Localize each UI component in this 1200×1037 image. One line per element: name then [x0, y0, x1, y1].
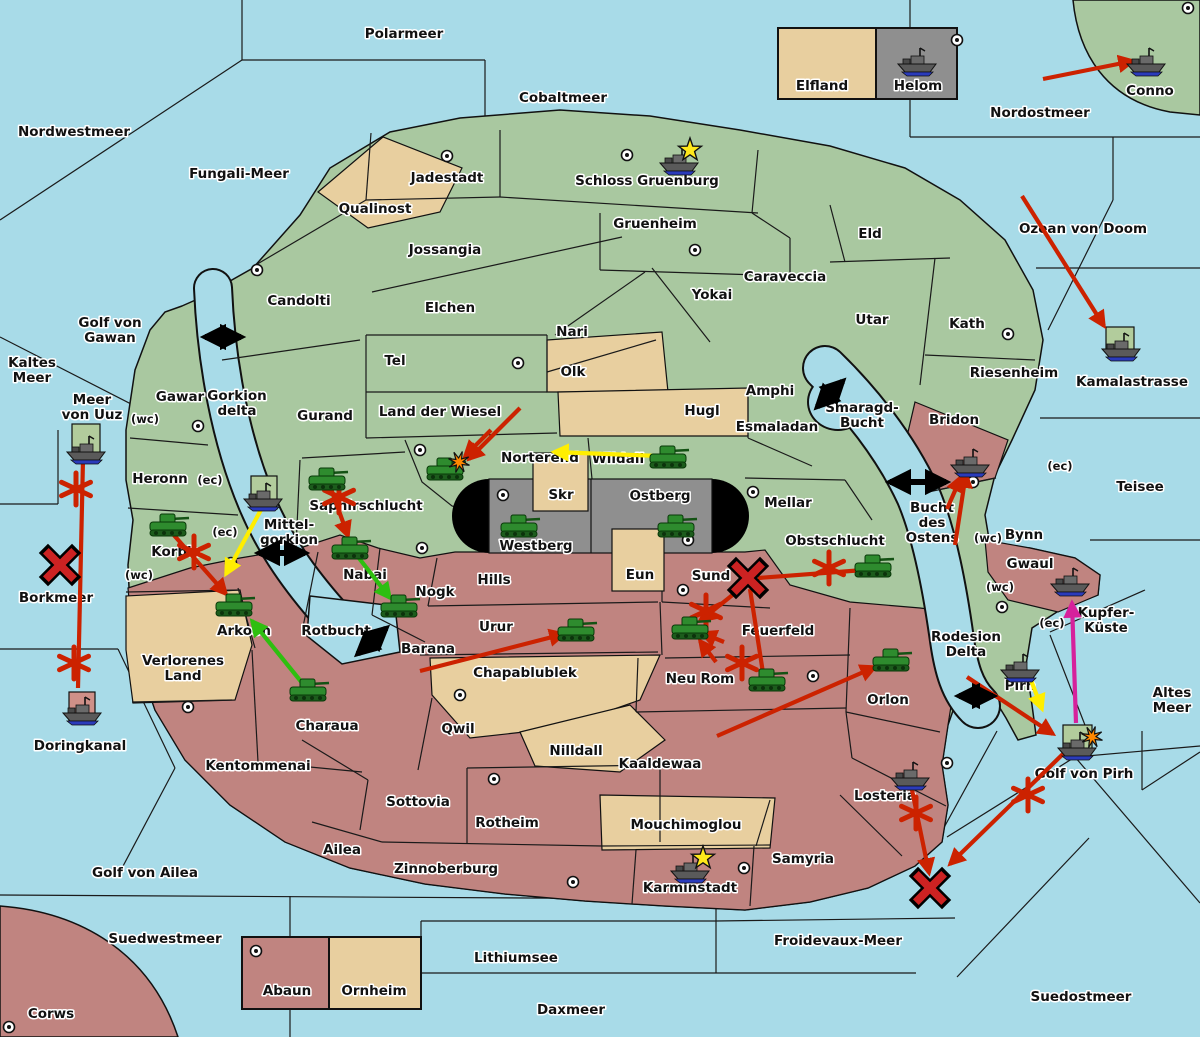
region-label-nabai: Nabai	[343, 567, 387, 583]
region-label-yokai: Yokai	[691, 287, 733, 303]
supply-center-dot	[513, 358, 524, 369]
supply-center-dot	[442, 151, 453, 162]
region-label-bridon: Bridon	[929, 412, 979, 428]
region-label-kentommenai: Kentommenai	[205, 758, 310, 774]
coast-label: (ec)	[197, 473, 222, 487]
sea-label-nordostmeer: Nordostmeer	[990, 105, 1090, 121]
region-label-riesenheim: Riesenheim	[970, 365, 1058, 381]
sea-label-rotbucht: Rotbucht	[301, 623, 371, 639]
region-label-westberg: Westberg	[499, 538, 572, 554]
region-label-kath: Kath	[949, 316, 985, 332]
supply-center-dot	[1003, 329, 1014, 340]
coast-label: (ec)	[212, 525, 237, 539]
game-map-window: PolarmeerCobaltmeerNordwestmeerFungali-M…	[0, 0, 1200, 1037]
sea-label-kamalastrasse: Kamalastrasse	[1076, 374, 1188, 390]
supply-center-dot	[193, 421, 204, 432]
region-label-corws: Corws	[28, 1006, 74, 1022]
coast-label: (ec)	[1047, 459, 1072, 473]
supply-center-dot	[622, 150, 633, 161]
sea-label-kupfer-kueste: Kupfer-Küste	[1078, 605, 1135, 636]
sea-label-doringkanal: Doringkanal	[34, 738, 126, 754]
coast-label: (wc)	[974, 531, 1002, 545]
supply-center-dot	[739, 863, 750, 874]
coast-label: (wc)	[986, 580, 1014, 594]
supply-center-dot	[952, 35, 963, 46]
region-label-sottovia: Sottovia	[386, 794, 450, 810]
region-label-rotheim: Rotheim	[475, 815, 539, 831]
supply-center-dot	[997, 602, 1008, 613]
tan-region	[547, 332, 668, 392]
region-label-gruenheim: Gruenheim	[613, 216, 697, 232]
region-label-gurand: Gurand	[297, 408, 353, 424]
supply-center-dot	[251, 946, 262, 957]
region-label-caraveccia: Caraveccia	[744, 269, 826, 285]
region-label-elchen: Elchen	[425, 300, 475, 316]
region-label-candolti: Candolti	[267, 293, 330, 309]
standoff-x-mark	[48, 553, 72, 577]
region-label-elfland: Elfland	[796, 78, 848, 94]
supply-center-dot	[417, 543, 428, 554]
supply-center-dot	[183, 702, 194, 713]
region-label-charaua: Charaua	[295, 718, 358, 734]
coast-label: (ec)	[1039, 616, 1064, 630]
region-label-amphi: Amphi	[746, 383, 794, 399]
region-label-feuerfeld: Feuerfeld	[742, 623, 815, 639]
supply-center-dot	[678, 585, 689, 596]
region-label-sund: Sund	[692, 568, 731, 584]
coast-label: (wc)	[131, 412, 159, 426]
region-label-bynn: Bynn	[1005, 527, 1043, 543]
sea-label-altes-meer: AltesMeer	[1153, 685, 1192, 716]
supply-center-dot	[489, 774, 500, 785]
sea-label-cobaltmeer: Cobaltmeer	[519, 90, 607, 106]
sea-label-froidevaux-meer: Froidevaux-Meer	[774, 933, 902, 949]
region-label-esmaladan: Esmaladan	[736, 419, 819, 435]
region-label-land-der-wiesel: Land der Wiesel	[379, 404, 501, 420]
supply-center-dot	[690, 245, 701, 256]
region-label-heronn: Heronn	[132, 471, 188, 487]
region-label-urur: Urur	[479, 619, 513, 635]
region-label-qwil: Qwil	[441, 721, 474, 737]
game-map[interactable]: PolarmeerCobaltmeerNordwestmeerFungali-M…	[0, 0, 1200, 1037]
supply-center-dot	[4, 1022, 15, 1033]
sea-label-nordwestmeer: Nordwestmeer	[18, 124, 130, 140]
sea-label-golf-von-ailea: Golf von Ailea	[92, 865, 198, 881]
sea-label-kaltes-meer: KaltesMeer	[8, 355, 56, 386]
region-label-gawar: Gawar	[156, 389, 205, 405]
region-label-nogk: Nogk	[415, 584, 455, 600]
region-label-zinnoberburg: Zinnoberburg	[394, 861, 498, 877]
standoff-x-mark	[918, 876, 942, 900]
region-label-abaun: Abaun	[263, 983, 311, 999]
region-label-neu-rom: Neu Rom	[666, 671, 735, 687]
region-label-hugl: Hugl	[684, 403, 719, 419]
sea-label-teisee: Teisee	[1116, 479, 1164, 495]
region-label-helom: Helom	[894, 78, 942, 94]
region-label-orlon: Orlon	[867, 692, 909, 708]
region-label-eun: Eun	[626, 567, 654, 583]
region-label-samyria: Samyria	[772, 851, 834, 867]
sea-label-fungali-meer: Fungali-Meer	[189, 166, 289, 182]
sea-label-borkmeer: Borkmeer	[19, 590, 94, 606]
region-label-conno: Conno	[1126, 83, 1174, 99]
region-label-nari: Nari	[556, 324, 588, 340]
region-label-ailea: Ailea	[323, 842, 361, 858]
supply-center-dot	[968, 477, 979, 488]
sea-label-suedostmeer: Suedostmeer	[1031, 989, 1132, 1005]
supply-center-dot	[808, 671, 819, 682]
region-label-jadestadt: Jadestadt	[410, 170, 484, 186]
standoff-x-mark	[736, 566, 760, 590]
region-label-obstschlucht: Obstschlucht	[785, 533, 885, 549]
region-label-barana: Barana	[401, 641, 455, 657]
sea-label-suedwestmeer: Suedwestmeer	[108, 931, 222, 947]
region-label-chapablublek: Chapablublek	[473, 665, 578, 681]
sea-label-golf-von-gawan: Golf vonGawan	[78, 315, 141, 346]
supply-center-dot	[415, 445, 426, 456]
supply-center-dot	[942, 758, 953, 769]
sea-label-mittel-gorkion: Mittel-gorkion	[260, 517, 318, 548]
supply-center-dot	[455, 690, 466, 701]
region-label-olk: Olk	[560, 364, 586, 380]
region-label-nilldall: Nilldall	[549, 743, 602, 759]
coast-label: (wc)	[125, 568, 153, 582]
region-label-kaaldewaa: Kaaldewaa	[619, 756, 702, 772]
region-label-schloss-gruenburg: Schloss Gruenburg	[575, 173, 719, 189]
supply-center-dot	[498, 490, 509, 501]
region-label-hills: Hills	[477, 572, 510, 588]
sea-label-daxmeer: Daxmeer	[537, 1002, 605, 1018]
region-label-mellar: Mellar	[764, 495, 812, 511]
sea-label-polarmeer: Polarmeer	[365, 26, 444, 42]
region-label-eld: Eld	[858, 226, 882, 242]
supply-center-dot	[568, 877, 579, 888]
supply-center-dot	[1183, 3, 1194, 14]
region-label-ornheim: Ornheim	[341, 983, 406, 999]
supply-center-dot	[748, 487, 759, 498]
region-label-utar: Utar	[855, 312, 889, 328]
supply-center-dot	[252, 265, 263, 276]
region-label-qualinost: Qualinost	[339, 201, 412, 217]
sea-label-lithiumsee: Lithiumsee	[474, 950, 558, 966]
region-label-ostberg: Ostberg	[629, 488, 690, 504]
region-label-tel: Tel	[384, 353, 405, 369]
region-label-gwaul: Gwaul	[1007, 556, 1054, 572]
region-label-jossangia: Jossangia	[408, 242, 482, 258]
region-label-skr: Skr	[548, 487, 574, 503]
region-label-losteria: Losteria	[854, 788, 916, 804]
region-label-mouchimoglou: Mouchimoglou	[630, 817, 741, 833]
